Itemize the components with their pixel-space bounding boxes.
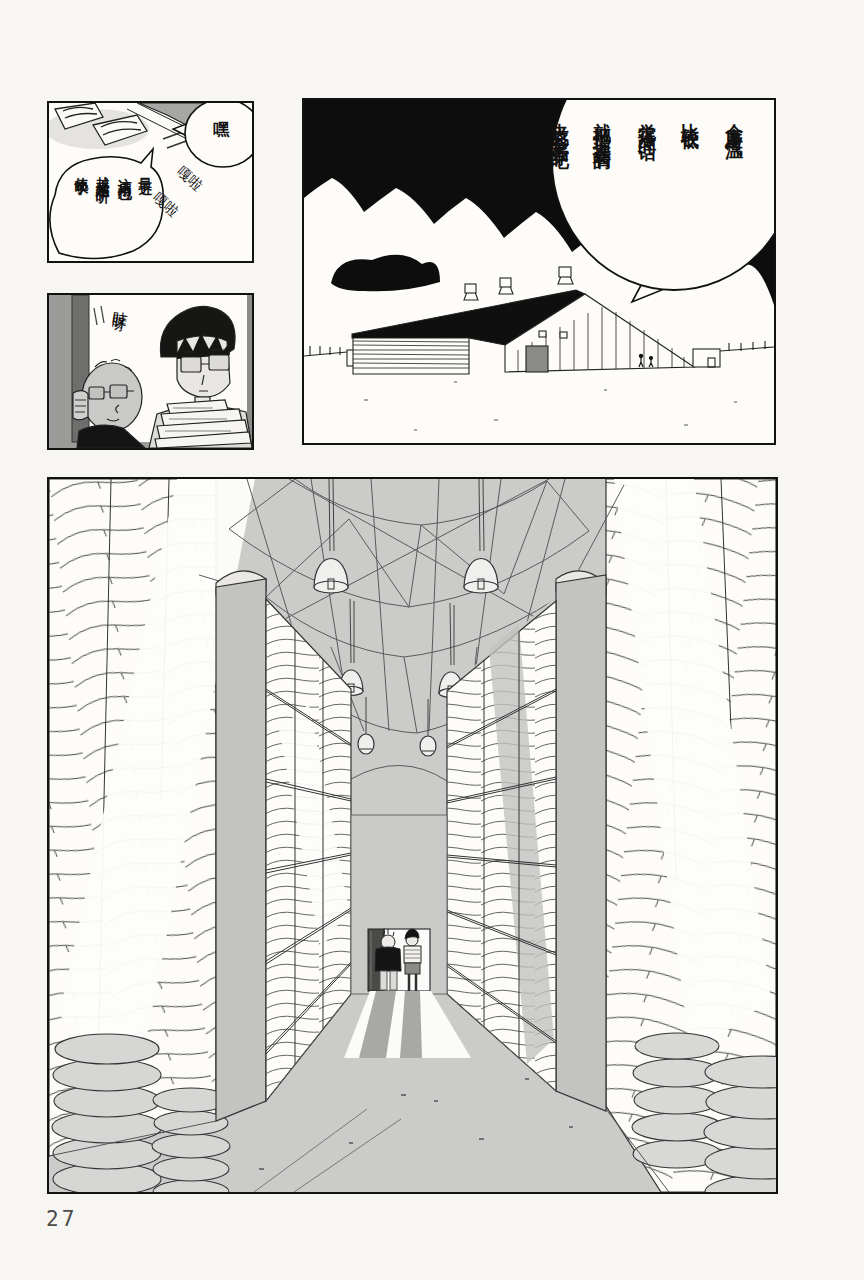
bubble-jacket-line: 仓库里气温 (725, 108, 743, 133)
panel-warehouse-interior (47, 477, 778, 1194)
warehouse-exterior-drawing (304, 100, 774, 443)
bubble-jacket-line: 夹克衫拿去穿吧 (551, 108, 569, 143)
low-cloud (331, 255, 440, 291)
right-rack (447, 571, 606, 1111)
bubble-jacket-line: 比较低 (681, 108, 699, 123)
floor-specks (259, 1079, 573, 1169)
back-wall (351, 815, 447, 994)
manga-page: 嘿 最近 这扇门也 越来越不听 使唤了… 嘎啦 嘎啦 (0, 0, 864, 1280)
tarp-stack (353, 337, 469, 374)
page-number: 27 (46, 1207, 77, 1231)
bubble-complaint-line: 使唤了… (75, 166, 89, 194)
bubble-complaint-line: 这扇门也 (118, 166, 132, 178)
bubble-complaint-line: 越来越不听 (96, 166, 110, 181)
panel-door-slide: 嘿 最近 这扇门也 越来越不听 使唤了… 嘎啦 嘎啦 (47, 101, 254, 263)
bubble-jacket-line: 觉得冷的话 (638, 108, 656, 133)
panel-warehouse-exterior: 仓库里气温 比较低 觉得冷的话 就把墙上挂着的 夹克衫拿去穿吧 (302, 98, 776, 445)
panel-peeking: 吱呀呀 (47, 293, 254, 450)
bubble-hey-text: 嘿 (213, 120, 229, 141)
peeking-drawing (49, 295, 252, 448)
bubble-complaint-line: 最近 (139, 166, 153, 172)
warehouse-interior-drawing (49, 479, 776, 1192)
bubble-jacket-line: 就把墙上挂着的 (593, 108, 611, 143)
warehouse-building (304, 267, 774, 430)
small-bulbs (358, 734, 436, 756)
outbuilding (693, 349, 720, 367)
ground-specks (364, 382, 737, 430)
warehouse-door (526, 346, 548, 372)
left-rack (216, 571, 351, 1121)
